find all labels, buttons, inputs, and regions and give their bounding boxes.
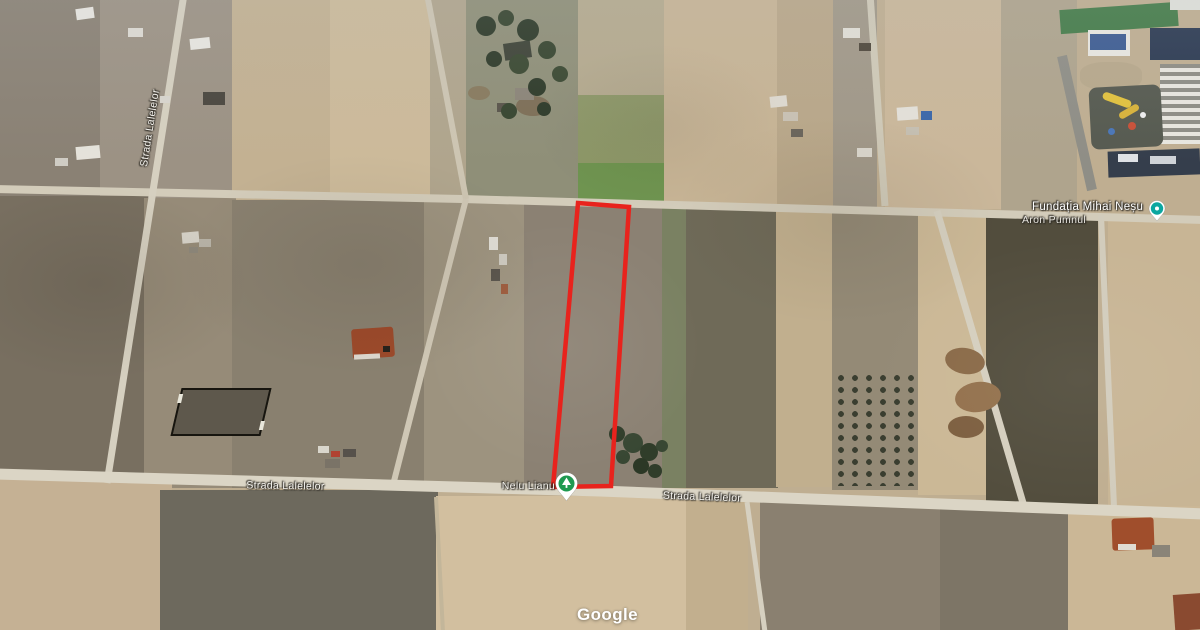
farm-equipment — [331, 451, 340, 457]
field-strip — [885, 0, 1003, 209]
poi-sublabel: Aron Pumnul — [1022, 214, 1086, 226]
building — [1150, 28, 1200, 60]
tree — [656, 440, 668, 452]
building — [189, 37, 210, 50]
field-strip — [578, 0, 666, 110]
tree — [552, 66, 568, 82]
field-strip — [578, 163, 666, 205]
place-label[interactable]: Nelu Lianu — [495, 480, 555, 492]
tree — [537, 102, 551, 116]
tree — [538, 41, 556, 59]
building — [182, 231, 200, 243]
playground-item — [1108, 128, 1115, 135]
field-strip — [232, 200, 428, 488]
field-strip — [578, 95, 666, 170]
tree — [528, 78, 546, 96]
field-strip — [940, 505, 1072, 630]
building — [128, 28, 143, 37]
field-strip — [436, 496, 688, 630]
vehicle — [489, 237, 498, 250]
building — [906, 127, 919, 135]
building-roof — [1118, 154, 1138, 162]
building — [921, 111, 932, 120]
building — [75, 145, 100, 160]
building — [791, 129, 803, 137]
building — [1152, 545, 1170, 557]
vehicle — [499, 254, 507, 265]
tree-icon-trunk — [566, 485, 568, 488]
satellite-map[interactable]: Strada Lalelelor Strada Lalelelor Strada… — [0, 0, 1200, 630]
building — [897, 106, 919, 120]
google-watermark: Google — [577, 605, 638, 625]
field-strip — [760, 502, 942, 630]
field-strip — [776, 208, 834, 487]
field-strip — [0, 477, 172, 630]
tree — [498, 10, 514, 26]
fenced-plot — [170, 388, 271, 436]
farm-equipment — [318, 446, 329, 453]
poi-label[interactable]: Fundația Mihai Neșu — [1032, 201, 1143, 213]
building — [55, 158, 68, 166]
plot-gate — [177, 394, 183, 403]
orchard-field — [686, 207, 778, 488]
playground-item — [1128, 122, 1136, 130]
field-strip — [1108, 216, 1200, 508]
tree — [476, 16, 496, 36]
soil-patch — [468, 86, 490, 100]
field-strip — [330, 0, 432, 200]
field-strip — [160, 490, 438, 630]
farm-equipment — [343, 449, 356, 457]
house-red-roof — [1173, 593, 1200, 630]
brush-pile — [948, 416, 984, 438]
pin-dot — [1155, 207, 1159, 211]
house-shadow — [383, 346, 390, 352]
building — [203, 92, 225, 105]
tree — [616, 450, 630, 464]
field-strip — [0, 196, 148, 486]
building-roof — [1150, 156, 1176, 164]
building — [189, 247, 198, 253]
building — [859, 43, 871, 51]
house-wall — [1118, 544, 1136, 550]
building — [783, 112, 798, 121]
field-strip — [0, 0, 105, 205]
tree — [501, 103, 517, 119]
tree — [648, 464, 662, 478]
building — [769, 95, 787, 108]
street-label-left: Strada Lalelelor — [238, 479, 333, 493]
tree — [509, 54, 529, 74]
solar-array — [1160, 64, 1200, 144]
field-strip — [686, 500, 748, 630]
tree — [486, 51, 502, 67]
playground-item — [1140, 112, 1146, 118]
building — [857, 148, 872, 157]
field-strip — [664, 0, 779, 207]
field-strip — [232, 0, 332, 200]
tree — [517, 19, 539, 41]
orchard-trees — [834, 372, 918, 486]
field-strip — [424, 202, 528, 490]
vehicle — [491, 269, 500, 281]
building — [843, 28, 860, 38]
farm-equipment — [325, 459, 340, 468]
building — [160, 96, 170, 103]
field-strip — [986, 214, 1098, 504]
tree — [633, 458, 649, 474]
building — [1170, 0, 1200, 10]
solar-panels — [1090, 34, 1126, 50]
building — [199, 239, 211, 247]
vehicle — [501, 284, 508, 294]
